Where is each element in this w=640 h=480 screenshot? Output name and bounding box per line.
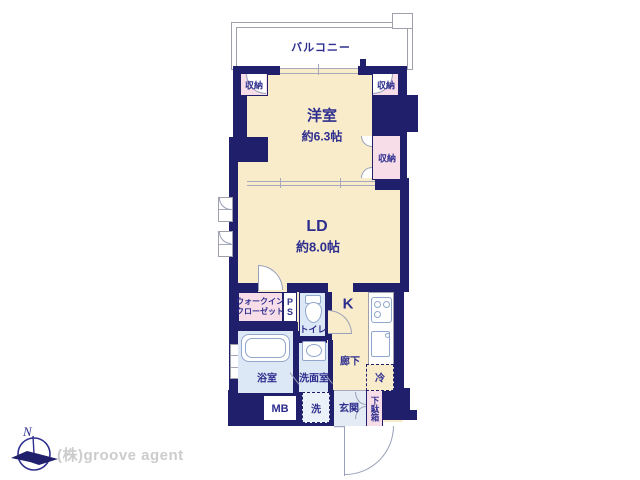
- laundry-label: 洗: [311, 401, 321, 416]
- entrance-label: 玄関: [339, 400, 359, 415]
- western-room-name: 洋室: [307, 105, 337, 126]
- washbasin-bowl-icon: [306, 344, 322, 357]
- floor-plan-canvas: バルコニー: [0, 0, 640, 480]
- wall-wic-bottom: [238, 322, 298, 331]
- washroom-label: 洗面室: [299, 370, 329, 385]
- balcony-door-line-bottom: [280, 73, 358, 74]
- closet-left-label: 収納: [245, 79, 263, 92]
- partition-line-bottom: [247, 185, 375, 186]
- ld-window-lower-mid: [219, 244, 232, 245]
- wall-right-kitchen: [394, 292, 404, 392]
- wic-label: ウォークイン クローゼット: [236, 297, 284, 317]
- western-room-size: 約6.3帖: [302, 128, 343, 145]
- ld-room-size: 約8.0帖: [296, 237, 340, 256]
- stove-icon: [371, 297, 392, 323]
- wall-right-ld: [400, 186, 409, 292]
- kitchen-faucet-icon: [385, 333, 390, 338]
- bathroom-window-tick1: [231, 355, 238, 356]
- wall-top-stub: [360, 59, 366, 67]
- wall-left-upper-thick: [233, 96, 247, 138]
- meter-box-label: MB: [271, 403, 288, 415]
- company-name: (株)groove agent: [57, 444, 184, 465]
- wall-closet-strip-right: [372, 96, 401, 135]
- closet-right-lower-label: 収納: [378, 152, 396, 165]
- balcony-door-line-top: [280, 68, 358, 69]
- balcony-door-tick: [318, 64, 319, 75]
- compass-north-letter: N: [22, 424, 33, 439]
- closet-right-top-label: 収納: [377, 79, 395, 92]
- wall-left-block: [229, 137, 268, 162]
- partition-tick-2: [340, 178, 341, 188]
- wall-bottom-right-foot: [383, 410, 417, 420]
- shoe-cabinet-label: 下駄箱: [369, 396, 381, 422]
- toilet-label: トイレ: [299, 323, 326, 336]
- fridge-label: 冷: [375, 370, 385, 385]
- stove-burner-2: [383, 301, 390, 308]
- wall-right-upper: [398, 66, 407, 98]
- ld-room-name: LD: [306, 218, 327, 236]
- entrance-door-arc: [345, 426, 394, 475]
- partition-line-top: [247, 181, 375, 182]
- bathroom-window-tick2: [231, 367, 238, 368]
- compass-icon: N: [8, 424, 64, 480]
- kitchen-label: K: [343, 296, 354, 313]
- balcony-label: バルコニー: [291, 39, 351, 55]
- entrance-door-leaf: [344, 426, 345, 476]
- toilet-door-leaf: [328, 333, 352, 334]
- wall-ld-bottom-a: [229, 283, 258, 292]
- wic-label-line1: ウォークイン: [236, 297, 284, 306]
- entrance-step-line: [334, 390, 366, 391]
- bathroom-label: 浴室: [257, 370, 277, 385]
- stove-burner-1: [374, 301, 381, 308]
- stove-burner-3: [374, 311, 381, 318]
- hallway-label: 廊下: [340, 353, 360, 368]
- wall-left-mid: [229, 162, 238, 292]
- wic-door-leaf: [258, 265, 259, 291]
- bathtub-inner-icon: [245, 338, 286, 358]
- wic-label-line2: クローゼット: [236, 307, 284, 316]
- wall-ld-bottom-c: [353, 283, 408, 292]
- balcony-railing-notch: [392, 13, 413, 29]
- pipe-space-label: PS: [285, 297, 295, 317]
- wall-ld-bottom-b: [287, 283, 328, 292]
- partition-tick-1: [280, 178, 281, 188]
